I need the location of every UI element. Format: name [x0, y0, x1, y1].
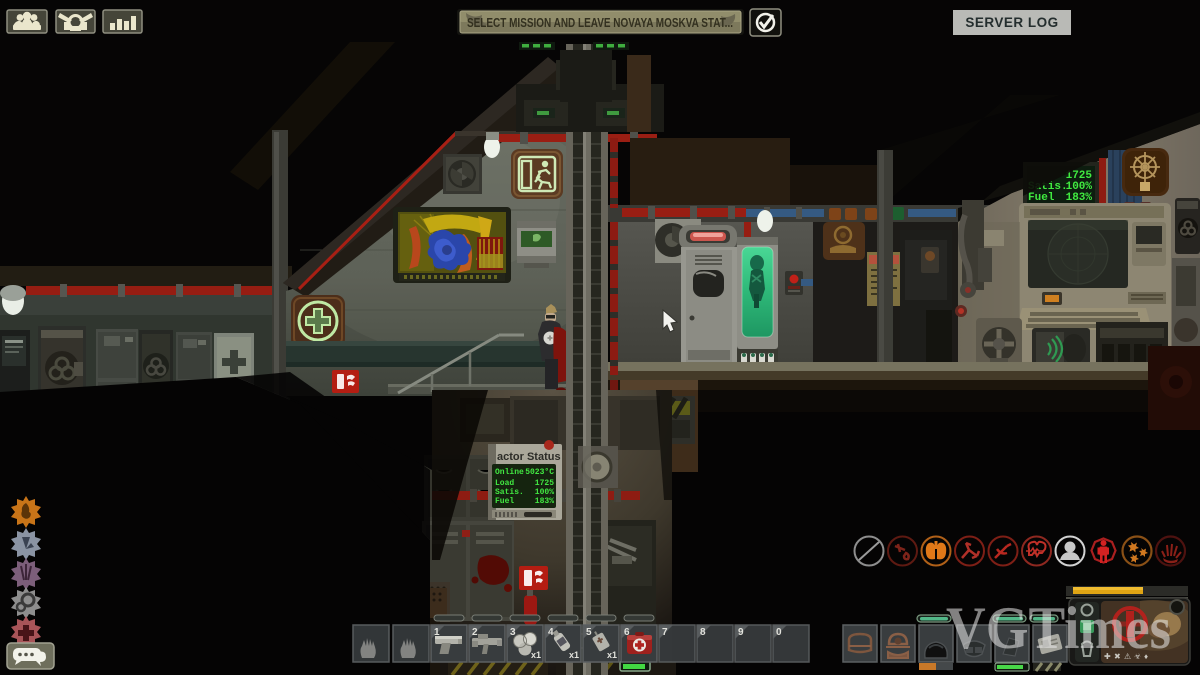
svg-text:7: 7	[662, 627, 668, 638]
svg-text:SERVER LOG: SERVER LOG	[965, 15, 1058, 30]
svg-text:x1: x1	[531, 650, 541, 660]
svg-text:x1: x1	[607, 650, 617, 660]
svg-text:5: 5	[586, 627, 592, 638]
svg-text:2: 2	[472, 627, 478, 638]
svg-text:9: 9	[738, 627, 744, 638]
svg-text:x1: x1	[569, 650, 579, 660]
svg-text:8: 8	[700, 627, 706, 638]
svg-text:VGTimes: VGTimes	[946, 595, 1171, 661]
svg-text:SELECT MISSION AND LEAVE NOVAY: SELECT MISSION AND LEAVE NOVAYA MOSKVA S…	[467, 16, 733, 30]
svg-text:0: 0	[776, 627, 782, 638]
